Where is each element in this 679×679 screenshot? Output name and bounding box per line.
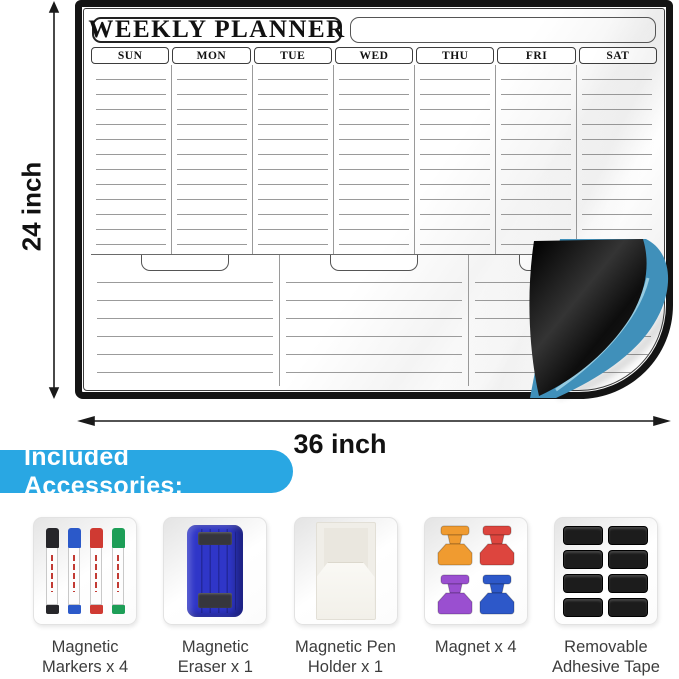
- height-arrow-head-bottom: [50, 388, 58, 397]
- height-dimension-label: 24 inch: [17, 147, 48, 267]
- accessory-label: RemovableAdhesive Tape: [552, 637, 660, 677]
- magnet-orange: [438, 526, 472, 565]
- eraser-card: [163, 517, 267, 625]
- height-arrow-head-top: [50, 3, 58, 12]
- notes-column: [280, 255, 469, 386]
- day-column: [91, 65, 172, 254]
- tape-piece: [563, 574, 603, 593]
- magnets-card: [424, 517, 528, 625]
- accessory-magnets: Magnet x 4: [417, 517, 535, 677]
- day-header: TUE: [254, 47, 332, 64]
- magnet-red: [480, 526, 514, 565]
- accessory-magnetic-eraser: MagneticEraser x 1: [156, 517, 274, 677]
- pen-holder-icon: [316, 522, 376, 620]
- included-accessories-banner: Included Accessories:: [0, 450, 293, 493]
- day-header: MON: [172, 47, 250, 64]
- blank-note-box: [350, 17, 656, 43]
- banner-label: Included Accessories:: [24, 443, 293, 501]
- marker-red: [90, 528, 103, 614]
- accessories-row: MagneticMarkers x 4 MagneticEraser x 1 M…: [26, 517, 665, 677]
- notes-column: [91, 255, 280, 386]
- day-header: SAT: [579, 47, 657, 64]
- marker-green: [112, 528, 125, 614]
- marker-black: [46, 528, 59, 614]
- accessory-label: MagneticMarkers x 4: [42, 637, 128, 677]
- eraser-icon: [187, 525, 243, 617]
- tape-piece: [608, 574, 648, 593]
- notes-tab: [519, 255, 607, 271]
- accessory-magnetic-markers: MagneticMarkers x 4: [26, 517, 144, 677]
- tape-piece: [608, 526, 648, 545]
- day-header-row: SUNMONTUEWEDTHUFRISAT: [91, 47, 657, 64]
- pen-holder-card: [294, 517, 398, 625]
- markers-card: [33, 517, 137, 625]
- product-infographic: WEEKLY PLANNER SUNMONTUEWEDTHUFRISAT: [0, 0, 679, 679]
- day-column: [577, 65, 657, 254]
- accessory-label: MagneticEraser x 1: [178, 637, 253, 677]
- notes-section: [91, 254, 657, 386]
- day-column: [496, 65, 577, 254]
- width-arrow-head-right: [654, 417, 668, 425]
- day-column: [334, 65, 415, 254]
- day-header: THU: [416, 47, 494, 64]
- tape-piece: [563, 598, 603, 617]
- day-column: [253, 65, 334, 254]
- notes-column: [469, 255, 657, 386]
- tape-card: [554, 517, 658, 625]
- day-header: SUN: [91, 47, 169, 64]
- day-header: FRI: [497, 47, 575, 64]
- tape-piece: [608, 550, 648, 569]
- notes-tab: [330, 255, 418, 271]
- accessory-adhesive-tape: RemovableAdhesive Tape: [547, 517, 665, 677]
- accessory-label: Magnetic PenHolder x 1: [295, 637, 396, 677]
- day-header: WED: [335, 47, 413, 64]
- magnets-icon: [435, 525, 517, 617]
- magnet-blue: [480, 575, 514, 614]
- day-column: [415, 65, 496, 254]
- tape-piece: [563, 550, 603, 569]
- markers-icon: [46, 528, 125, 614]
- notes-tab: [141, 255, 229, 271]
- tape-piece: [563, 526, 603, 545]
- title-row: WEEKLY PLANNER: [92, 17, 656, 43]
- width-arrow-head-left: [80, 417, 94, 425]
- planner-surface: WEEKLY PLANNER SUNMONTUEWEDTHUFRISAT: [83, 8, 665, 391]
- accessory-pen-holder: Magnetic PenHolder x 1: [286, 517, 404, 677]
- tape-piece: [608, 598, 648, 617]
- planner-title: WEEKLY PLANNER: [92, 17, 342, 43]
- tape-icon: [563, 526, 648, 617]
- day-column: [172, 65, 253, 254]
- magnet-purple: [438, 575, 472, 614]
- weekly-grid: [91, 65, 657, 254]
- planner-board: WEEKLY PLANNER SUNMONTUEWEDTHUFRISAT: [75, 0, 673, 399]
- marker-blue: [68, 528, 81, 614]
- accessory-label: Magnet x 4: [435, 637, 517, 657]
